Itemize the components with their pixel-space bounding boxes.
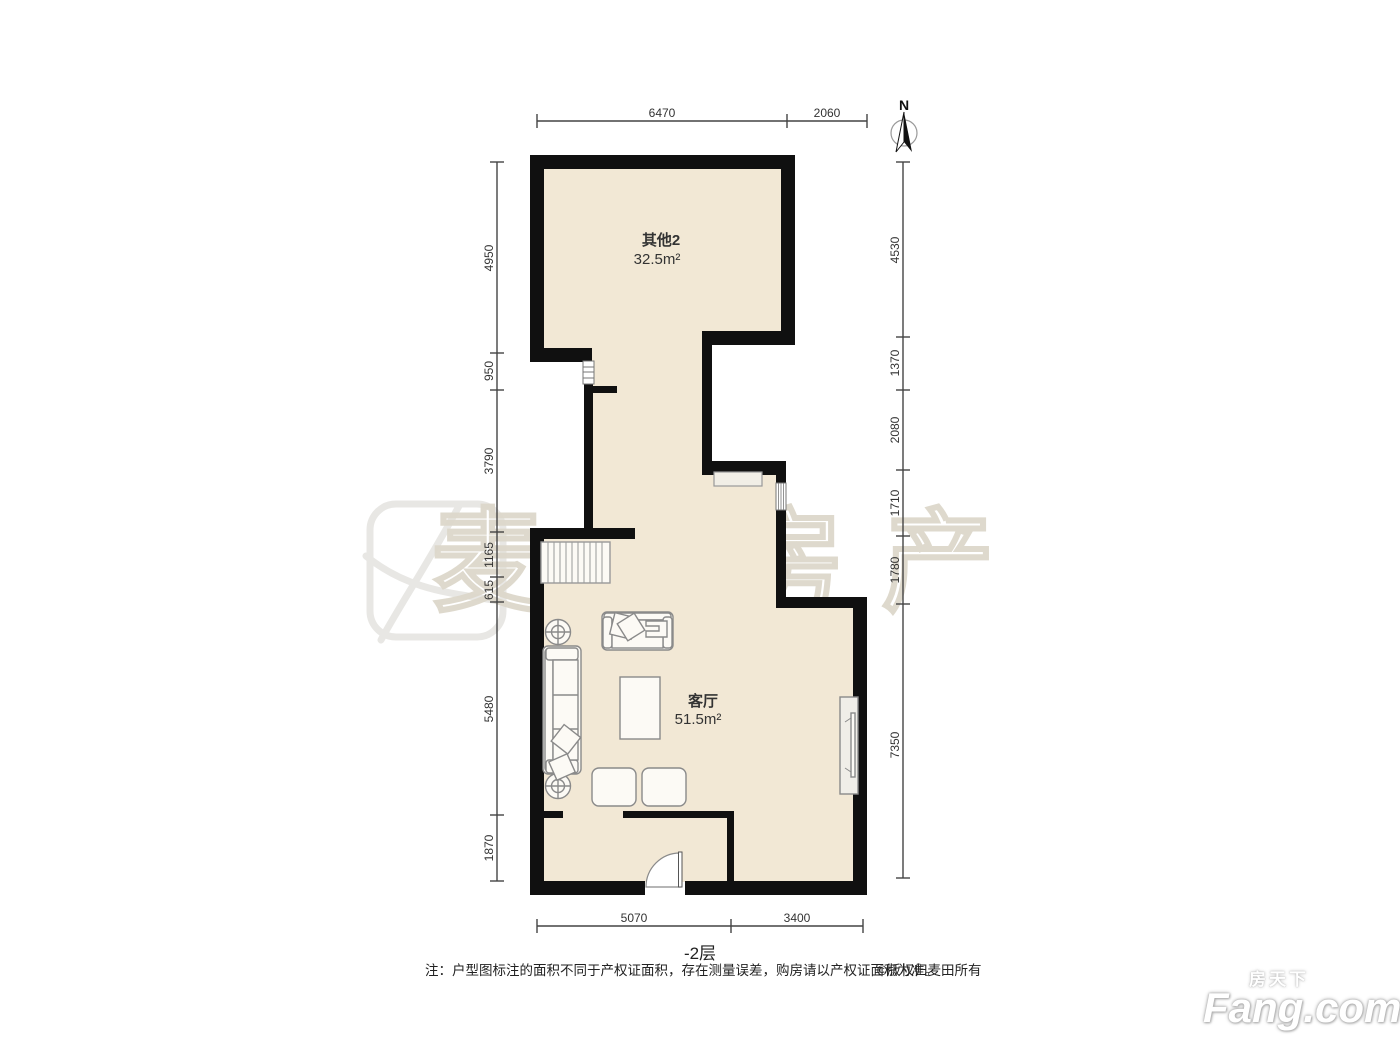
room-name: 其他2 xyxy=(642,231,680,249)
sofa-icon xyxy=(543,646,581,780)
window-icon xyxy=(776,483,786,510)
wall xyxy=(530,881,645,895)
wall xyxy=(776,461,786,483)
wall xyxy=(702,331,795,345)
room-name: 客厅 xyxy=(687,692,718,710)
dim-label: 1710 xyxy=(888,489,902,516)
dim-label: 615 xyxy=(482,580,496,600)
dim-label: 1780 xyxy=(888,556,902,583)
dim-label: 4950 xyxy=(482,244,496,271)
north-compass-icon: N xyxy=(891,97,917,152)
dim-label: 7350 xyxy=(888,731,902,758)
room-area: 32.5m² xyxy=(634,251,681,268)
dim-bottom: 5070 3400 xyxy=(537,911,863,933)
window-icon xyxy=(583,361,594,384)
dim-label: 3790 xyxy=(482,447,496,474)
stool-icon xyxy=(642,768,686,806)
dim-label: 5480 xyxy=(482,695,496,722)
floor-label: -2层 xyxy=(684,944,716,963)
dim-label: 2060 xyxy=(814,106,841,120)
wall xyxy=(776,510,786,602)
dim-label: 1870 xyxy=(482,834,496,861)
stairs-icon xyxy=(541,542,610,583)
wall xyxy=(623,811,733,818)
dim-label: 950 xyxy=(482,361,496,381)
dim-label: 4530 xyxy=(888,236,902,263)
dim-top: 6470 2060 xyxy=(537,106,867,128)
footer-texts: -2层 注：户型图标注的面积不同于产权证面积，存在测量误差，购房请以产权证面积为… xyxy=(425,944,981,978)
wall xyxy=(530,348,592,362)
dim-label: 5070 xyxy=(621,911,648,925)
wall xyxy=(593,386,617,393)
wall xyxy=(727,811,734,888)
copyright-text: ©版权归麦田所有 xyxy=(877,962,981,978)
dim-label: 2080 xyxy=(888,416,902,443)
dim-label: 1370 xyxy=(888,349,902,376)
north-label: N xyxy=(899,97,909,113)
bay-panel xyxy=(714,472,762,486)
wall xyxy=(781,155,795,345)
wall xyxy=(530,155,544,362)
note-text: 注：户型图标注的面积不同于产权证面积，存在测量误差，购房请以产权证面积为准。 xyxy=(425,962,938,978)
loveseat-icon xyxy=(602,612,673,650)
wall xyxy=(702,331,712,475)
stool-icon xyxy=(592,768,636,806)
room-area: 51.5m² xyxy=(675,711,722,728)
wall xyxy=(584,383,593,538)
wall xyxy=(530,528,635,539)
dim-label: 6470 xyxy=(649,106,676,120)
floorplan-page: 麦田房产 xyxy=(0,0,1400,1050)
speaker-icon xyxy=(545,619,571,645)
floorplan-drawing: 麦田房产 xyxy=(0,0,1400,1050)
wall xyxy=(685,881,867,895)
coffee-table-icon xyxy=(620,677,660,739)
dim-label: 3400 xyxy=(784,911,811,925)
dim-label: 1165 xyxy=(482,542,496,568)
wall xyxy=(530,155,795,169)
wall xyxy=(530,811,563,818)
tv-unit-icon xyxy=(840,697,858,794)
